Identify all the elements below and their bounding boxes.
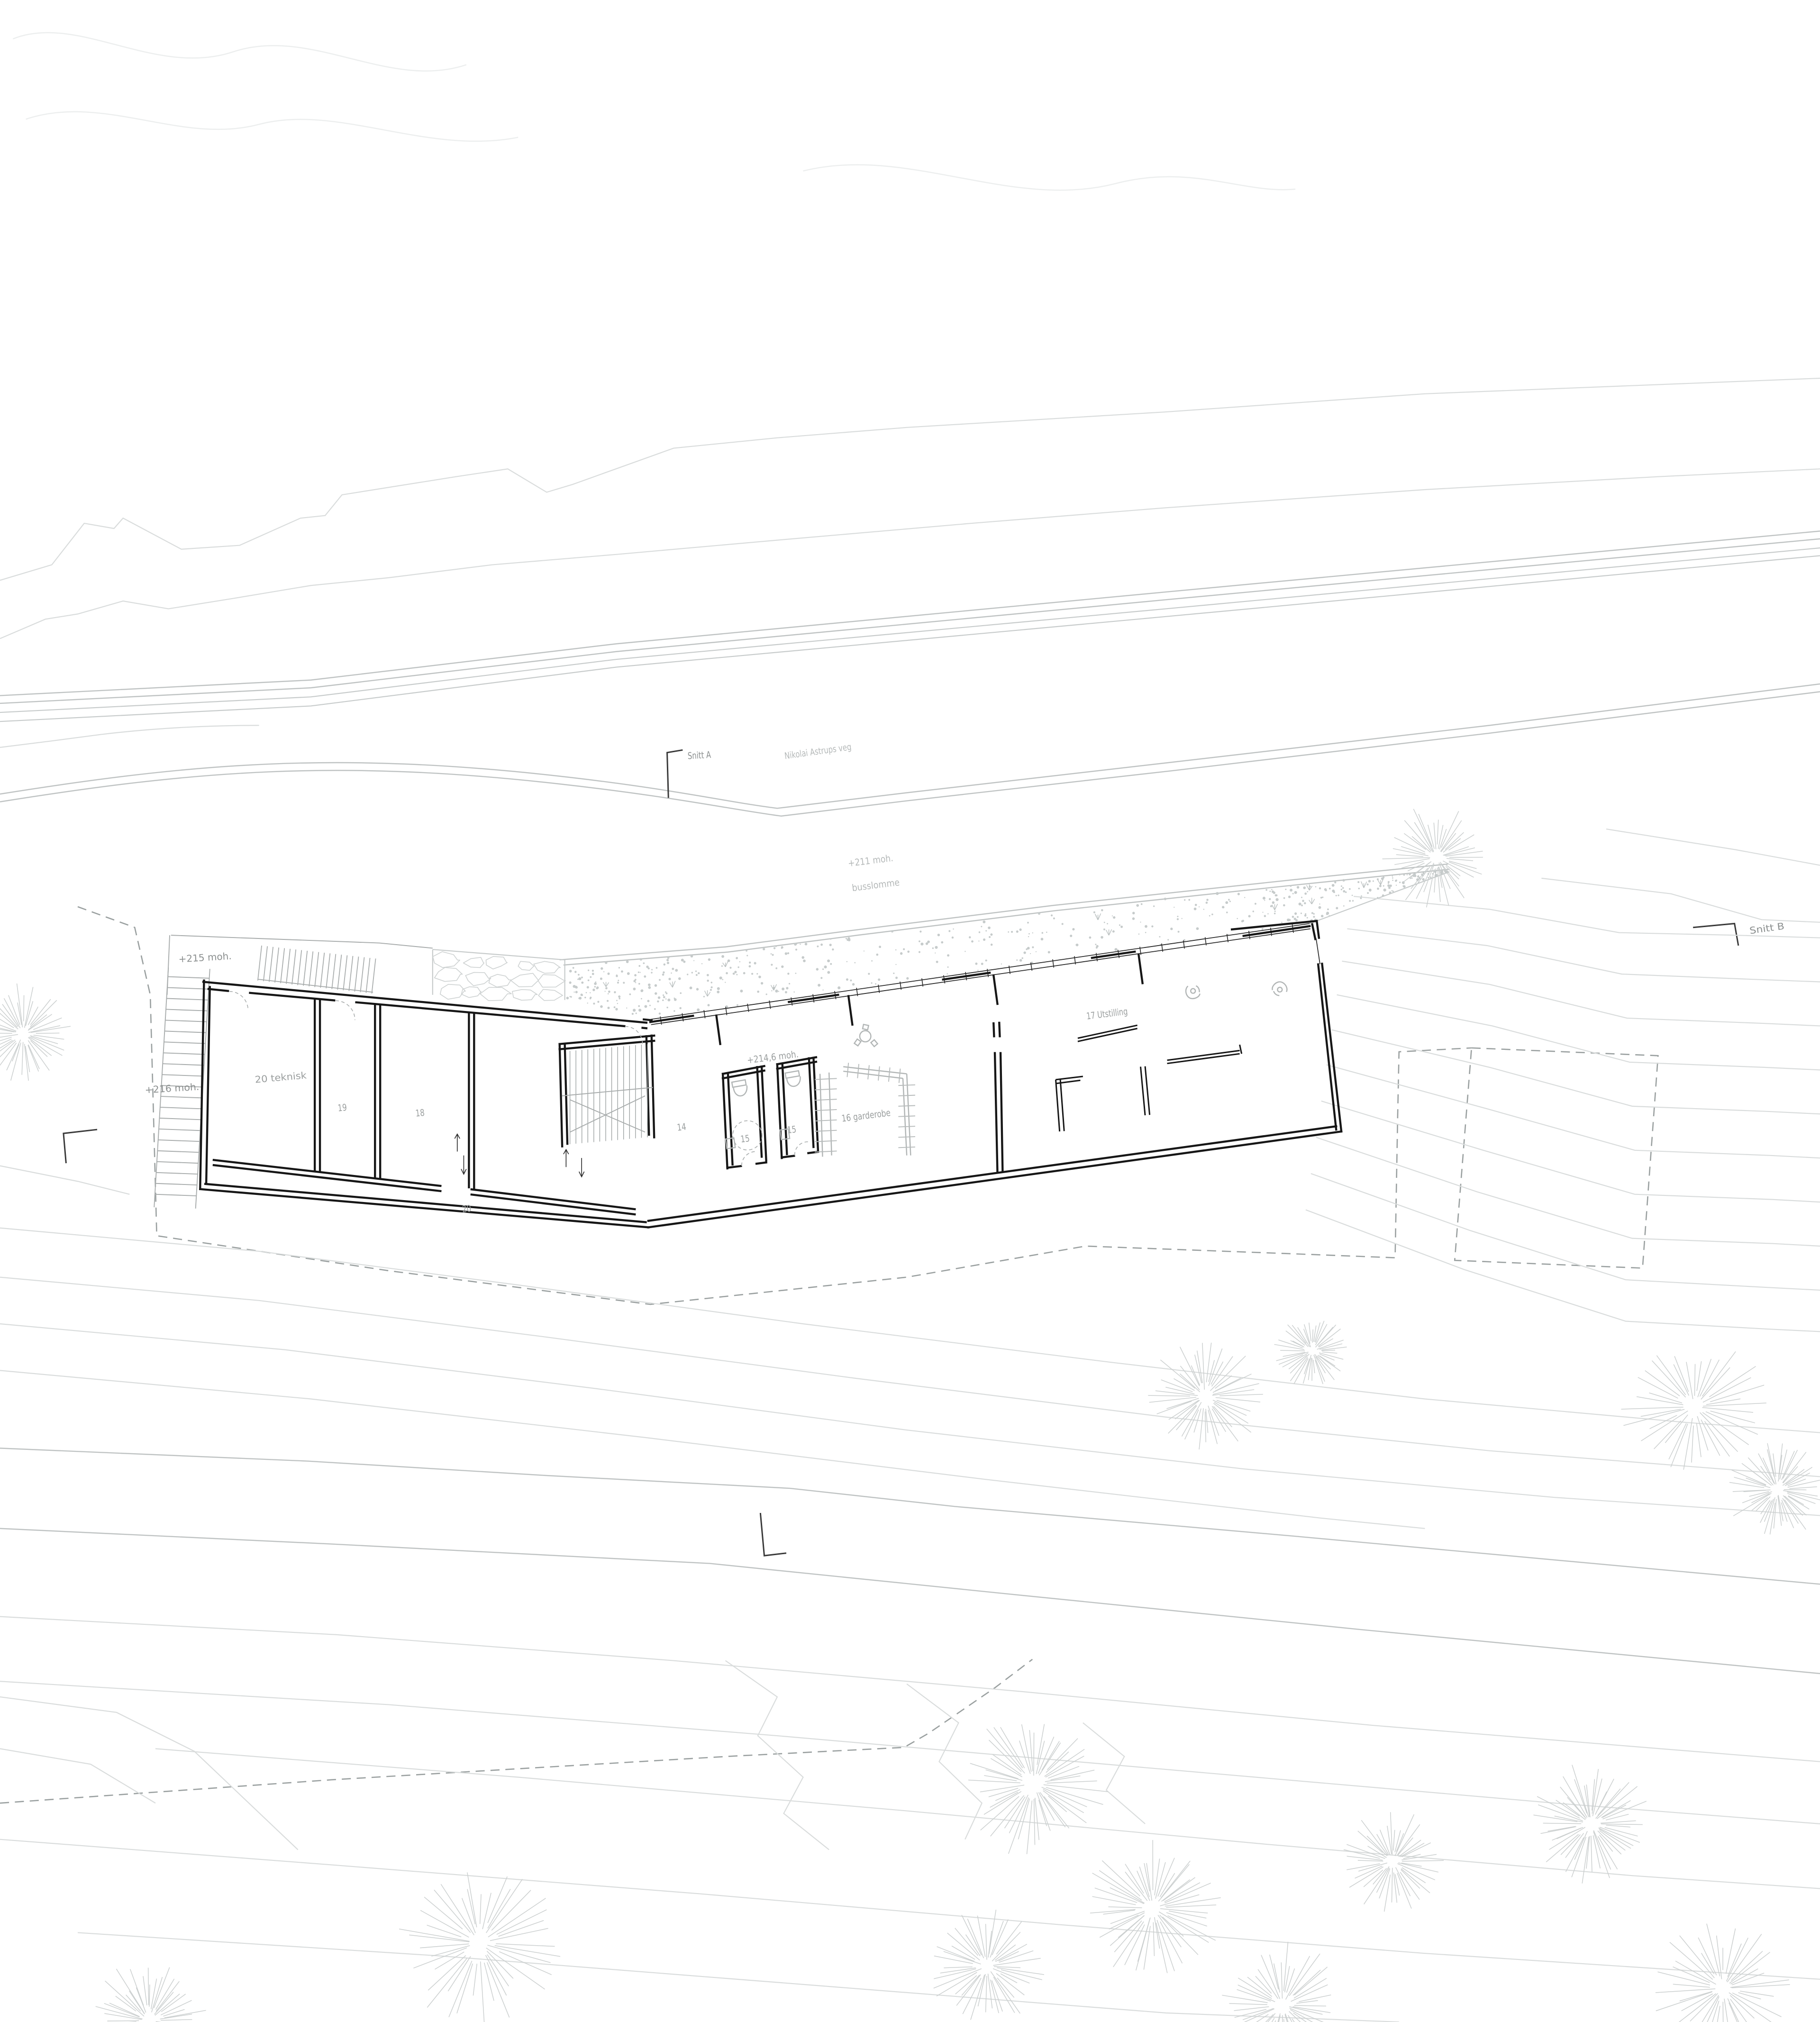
label-elev-215: +215 moh.: [178, 950, 232, 965]
wc-cubicle-a: [723, 1066, 766, 1168]
stone-paving: [433, 949, 565, 1001]
label-room-18: 18: [415, 1107, 425, 1119]
excavation-boundary: [78, 907, 1472, 1304]
table-and-chairs-icon: [854, 1024, 877, 1047]
label-room-17-utstilling: 17 Utstilling: [1086, 1006, 1128, 1021]
label-room-16-garderobe: 16 garderobe: [841, 1107, 891, 1124]
exterior-wall-west: [200, 981, 204, 1189]
label-room-15-a: 15: [740, 1133, 750, 1145]
label-room-20: 20: [462, 1203, 472, 1215]
label-room-20-teknisk: 20 teknisk: [255, 1070, 308, 1085]
section-marker-a-bottom: [760, 1513, 786, 1556]
garderobe-fittings: [815, 1063, 915, 1157]
label-elev-211: +211 moh.: [847, 853, 894, 869]
trees: [0, 809, 1820, 2022]
exhibition-walls: [1056, 1025, 1241, 1131]
faint-sketch-lines: [13, 33, 1295, 190]
glazing-fin: [848, 996, 852, 1025]
lower-road: [0, 1448, 1820, 1674]
label-room-15-b: 15: [787, 1124, 797, 1136]
terrain-contours-middle: [0, 1166, 1820, 1529]
label-elev-214-6: +214,6 moh.: [746, 1048, 799, 1066]
label-busslomme: busslomme: [851, 877, 900, 893]
wc-cubicle-b: [777, 1057, 818, 1158]
wall-16-17: [993, 1023, 1002, 1172]
label-road-name: Nikolai Astrups veg: [784, 741, 852, 762]
wall-teknisk-19: [315, 999, 320, 1171]
wall-18-hall: [469, 1013, 474, 1188]
section-marker-b-left: [64, 1129, 97, 1163]
toilet-icon: [785, 1071, 802, 1087]
bus-bay-edge: [560, 864, 1450, 965]
exterior-wall-north-left: [203, 982, 646, 1023]
wall-19-18: [375, 1004, 380, 1177]
glazing-band: [650, 924, 1310, 1044]
toilet-icon: [732, 1080, 748, 1097]
terrain-contours-upper: [0, 378, 1820, 747]
exterior-wall-northeast-cap: [1232, 921, 1317, 929]
label-snitt-a: Snitt A: [687, 749, 711, 762]
terrain-contours-bottom: [0, 1617, 1820, 2022]
label-snitt-b: Snitt B: [1749, 920, 1785, 936]
upper-road: [0, 531, 1820, 816]
person-icon: [1270, 979, 1289, 998]
label-elev-216: +216 moh.: [145, 1081, 200, 1096]
terrain-contours-right: [1306, 829, 1820, 1331]
person-icon: [1184, 984, 1201, 1000]
east-window: [1316, 938, 1320, 964]
label-room-19: 19: [337, 1102, 347, 1114]
glazing-fin: [716, 1016, 720, 1044]
roof-planting-stipple: [566, 869, 1448, 1015]
label-room-14: 14: [676, 1121, 687, 1133]
exterior-wall-south-right: [648, 1131, 1341, 1227]
site-plan-drawing: Snitt A Nikolai Astrups veg +211 moh. bu…: [0, 0, 1820, 2022]
dashed-boundaries: [0, 907, 1658, 1803]
labels: Snitt A Nikolai Astrups veg +211 moh. bu…: [145, 741, 1785, 1215]
interior-stair: [560, 1036, 655, 1147]
building: [200, 921, 1341, 1227]
glazing-fin: [993, 975, 997, 1004]
exterior-wall-east: [1317, 921, 1341, 1131]
glazing-fin: [1138, 955, 1142, 983]
